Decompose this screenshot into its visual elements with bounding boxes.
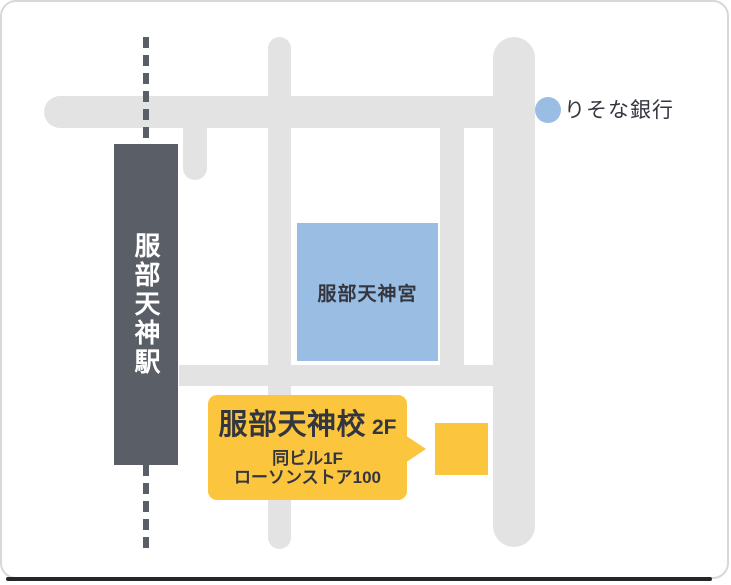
road-right-vertical xyxy=(493,37,535,547)
school-building-marker xyxy=(435,423,488,475)
bank-label: りそな銀行 xyxy=(564,98,674,124)
shrine-block: 服部天神宮 xyxy=(297,223,438,361)
bottom-section-edge xyxy=(6,577,712,581)
school-callout: 服部天神校 2F 同ビル1F ローソンストア100 xyxy=(208,395,407,500)
school-name: 服部天神校 xyxy=(218,401,366,443)
school-note-line2: ローソンストア100 xyxy=(234,468,381,487)
school-note-line1: 同ビル1F xyxy=(272,449,343,468)
road-dead-end-stub xyxy=(183,128,207,180)
shrine-label: 服部天神宮 xyxy=(317,279,417,306)
bank-marker-icon xyxy=(535,97,561,123)
school-floor: 2F xyxy=(372,416,397,440)
railway-dashed-line-top xyxy=(143,37,149,144)
railway-dashed-line-bottom xyxy=(143,465,149,553)
callout-pointer-arrow xyxy=(405,435,426,463)
access-map-card: 服部天神駅 服部天神宮 りそな銀行 服部天神校 2F 同ビル1F ローソンストア… xyxy=(0,0,729,579)
station-block: 服部天神駅 xyxy=(114,144,178,465)
station-label: 服部天神駅 xyxy=(133,232,159,377)
road-middle-vertical xyxy=(440,128,464,386)
road-bottom-horizontal xyxy=(179,365,535,386)
school-callout-title-row: 服部天神校 2F xyxy=(218,401,396,443)
